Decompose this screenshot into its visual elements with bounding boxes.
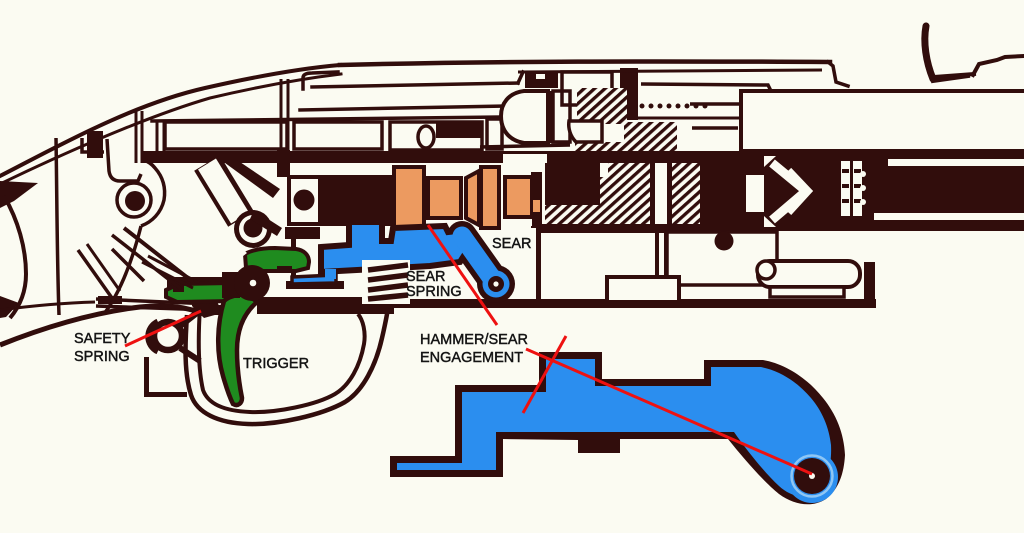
svg-text:TRIGGER: TRIGGER (243, 356, 309, 372)
svg-text:SPRING: SPRING (406, 284, 462, 300)
svg-text:ENGAGEMENT: ENGAGEMENT (420, 350, 523, 366)
svg-text:SAFETY: SAFETY (74, 331, 131, 347)
svg-text:SEAR: SEAR (406, 269, 446, 285)
svg-text:SPRING: SPRING (74, 349, 130, 365)
svg-text:SEAR: SEAR (492, 236, 532, 252)
svg-text:HAMMER/SEAR: HAMMER/SEAR (420, 332, 528, 348)
